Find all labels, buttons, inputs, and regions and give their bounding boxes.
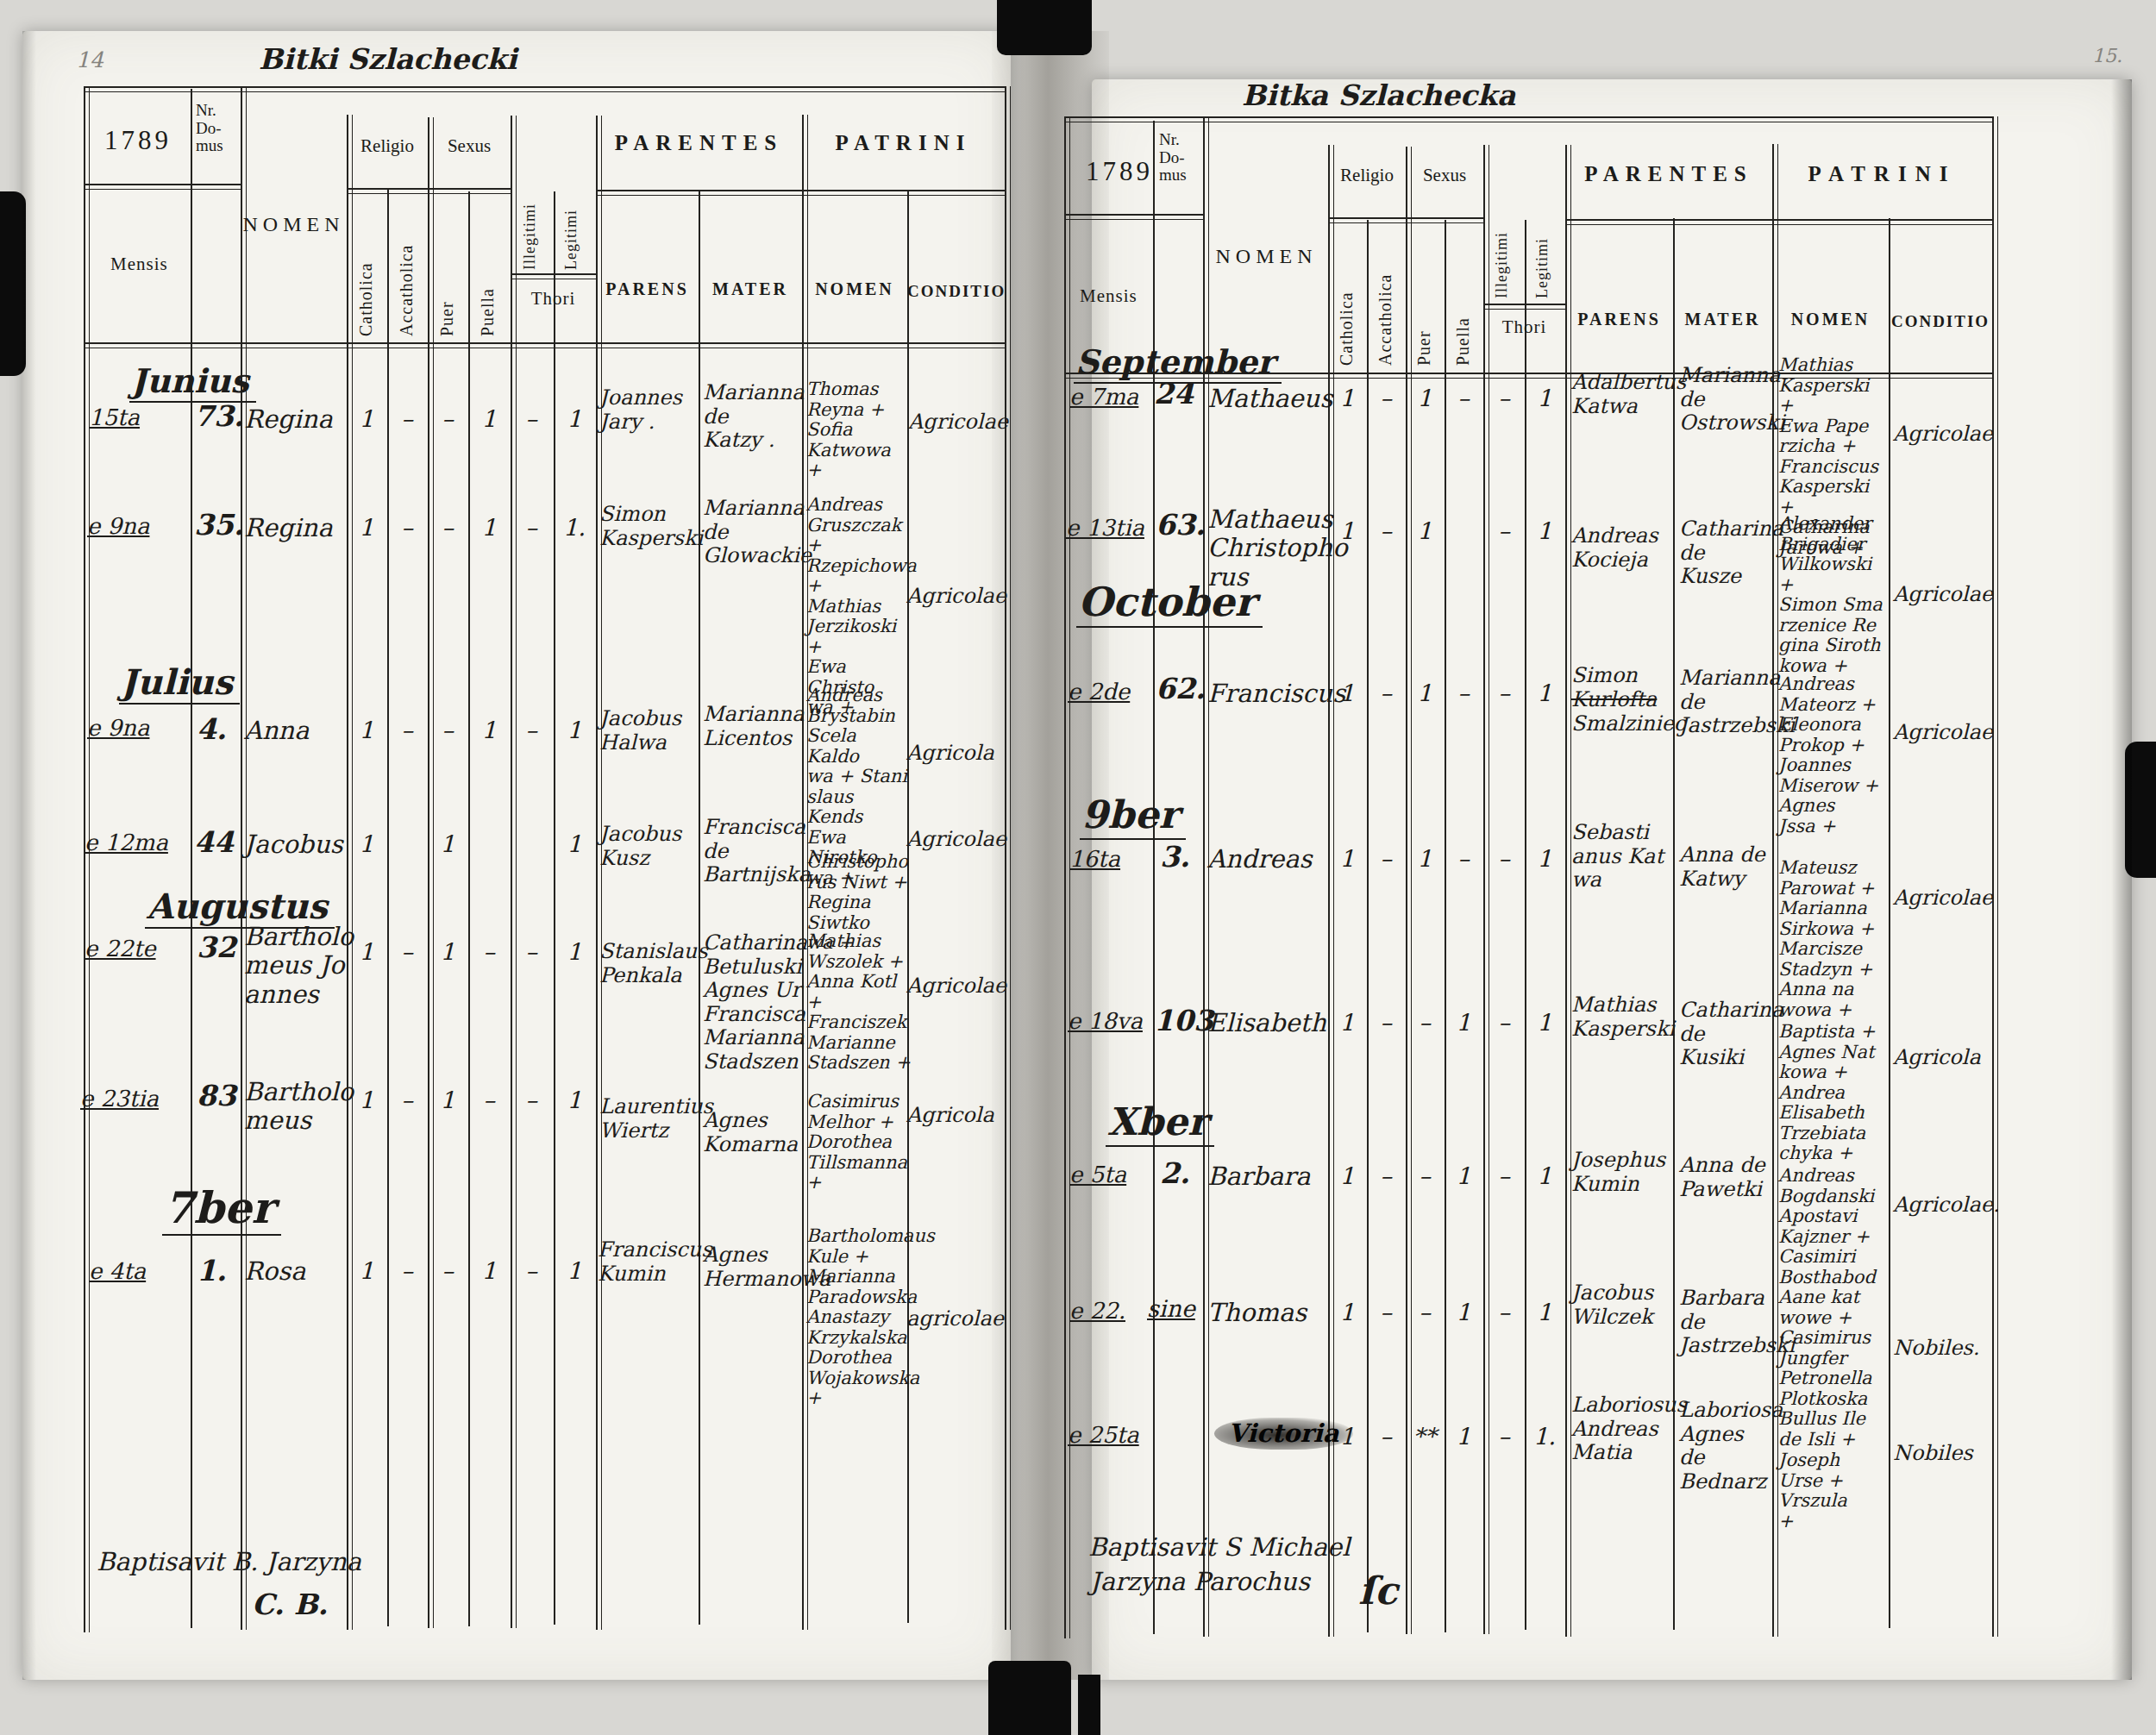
- col-header-nr-domus: Nr. Do- mus: [196, 102, 242, 155]
- entry-house-number: 83: [197, 1080, 236, 1112]
- mark-accatholica: –: [1367, 1009, 1405, 1036]
- col-header-patrini: PATRINI: [802, 131, 1005, 154]
- entry-conditio: Agricolae: [1893, 583, 1990, 607]
- mark-illegitimi: –: [1485, 1009, 1523, 1036]
- entry-conditio: Agricolae: [1893, 886, 1990, 911]
- mark-puer: 1: [1406, 517, 1444, 544]
- col-header-religio: Religio: [347, 136, 428, 156]
- entry-child-name: Thomas: [1207, 1299, 1328, 1327]
- entry-mater: Agnes Komarna: [703, 1109, 801, 1156]
- entry-parens: Adalbertus Katwa: [1571, 371, 1673, 418]
- entry-patrini-names: Mateusz Parowat + Marianna Sirkowa + Mar…: [1778, 858, 1889, 1020]
- mark-catholica: 1: [1328, 1423, 1366, 1450]
- mark-illegitimi: –: [512, 717, 550, 743]
- entry-house-number: 1.: [197, 1255, 226, 1287]
- entry-child-name: Regina: [244, 514, 356, 542]
- entry-child-name: Elisabeth: [1207, 1009, 1328, 1037]
- mark-puer: 1: [1406, 845, 1444, 872]
- mark-legitimi: 1: [1526, 1009, 1564, 1036]
- col-header-accatholica: Accatholica: [398, 197, 417, 336]
- col-header-patrini-nomen: NOMEN: [802, 280, 907, 299]
- entry-parens: Laurentius Wiertz: [599, 1095, 698, 1143]
- mark-catholica: 1: [1328, 385, 1366, 411]
- col-header-sexus: Sexus: [428, 136, 511, 156]
- mark-puer: 1: [429, 830, 467, 857]
- table-line: [1064, 116, 1992, 122]
- mark-accatholica: –: [1367, 845, 1405, 872]
- priest-signature: C. B.: [252, 1588, 328, 1621]
- mark-legitimi: 1: [555, 1087, 593, 1113]
- entry-child-name: Jacobus: [244, 830, 356, 859]
- entry-parens: Stanislaus Penkala: [599, 940, 698, 987]
- table-line: [84, 184, 241, 190]
- mark-legitimi: 1: [1526, 845, 1564, 872]
- entry-date: e 5ta: [1069, 1162, 1126, 1188]
- col-header-catholica: Catholica: [357, 197, 376, 336]
- mark-puer: –: [1406, 1299, 1444, 1325]
- mark-accatholica: –: [388, 717, 426, 743]
- month-header: 9ber: [1080, 793, 1186, 840]
- table-line: [1328, 217, 1483, 223]
- mark-catholica: 1: [348, 717, 385, 743]
- entry-mater: Marianna de Jastrzebski: [1679, 667, 1772, 738]
- table-line: [1525, 220, 1526, 1630]
- entry-patrini-names: Andreas Bogdanski Apostavi Kajzner + Cas…: [1778, 1166, 1889, 1328]
- col-header-mater: MATER: [699, 280, 802, 299]
- mark-illegitimi: –: [512, 1257, 550, 1284]
- entry-mater: Marianna de Glowackie: [703, 497, 801, 568]
- col-header-nr-domus: Nr. Do- mus: [1159, 131, 1206, 185]
- mark-puella: 1: [1445, 1299, 1482, 1325]
- entry-conditio: Agricola: [906, 742, 1003, 766]
- entry-conditio: Agricola: [906, 1104, 1003, 1128]
- entry-conditio: Nobiles.: [1893, 1337, 1990, 1361]
- entry-date: e 22te: [85, 936, 156, 962]
- mark-puella: 1: [1445, 1009, 1482, 1036]
- handwritten-title: Bitka Szlachecka: [1242, 79, 1515, 112]
- mark-accatholica: –: [388, 405, 426, 432]
- entry-patrini-names: Joseph Urse + Vrszula +: [1778, 1450, 1889, 1531]
- table-line: [1005, 86, 1011, 1630]
- col-header-parentes: PARENTES: [1565, 162, 1772, 185]
- mark-catholica: 1: [1328, 1009, 1366, 1036]
- mark-accatholica: –: [388, 514, 426, 541]
- entry-parens: Jacobus Kusz: [599, 823, 698, 870]
- col-header-mater: MATER: [1673, 310, 1772, 329]
- month-header: 7ber: [162, 1183, 281, 1236]
- mark-puer: –: [429, 514, 467, 541]
- mark-puella: –: [470, 938, 508, 965]
- mark-legitimi: 1.: [555, 514, 593, 541]
- entry-conditio: agricolae: [906, 1307, 1003, 1331]
- entry-parens: Smalziniec: [1571, 712, 1673, 736]
- mark-puella: 1: [470, 405, 508, 432]
- mark-puer: –: [1406, 1009, 1444, 1036]
- baptizavit-note: Baptisavit B. Jarzyna: [97, 1548, 361, 1576]
- entry-child-name: Mathaeus Christopho rus: [1207, 505, 1328, 592]
- mark-accatholica: –: [1367, 385, 1405, 411]
- col-header-mensis: Mensis: [1080, 286, 1166, 306]
- entry-house-number: 2.: [1160, 1157, 1189, 1190]
- mark-puella: –: [1445, 385, 1482, 411]
- entry-mater: Anna de Katwy: [1679, 843, 1772, 891]
- table-line: [84, 86, 90, 1632]
- entry-parens: Laboriosus Andreas Matia: [1571, 1394, 1673, 1465]
- entry-patrini-names: Thomas Reyna + Sofia Katwowa +: [806, 379, 912, 481]
- table-line: [1064, 116, 1070, 1638]
- entry-date: 15ta: [89, 405, 140, 431]
- mark-catholica: 1: [1328, 517, 1366, 544]
- entry-house-number: 35.: [194, 509, 243, 542]
- entry-parens: Simon: [1571, 664, 1673, 688]
- entry-patrini-names: Casimirus Jungfer Petronella Plotkoska B…: [1778, 1328, 1889, 1450]
- mark-puella: –: [470, 1087, 508, 1113]
- mark-puella: 1: [1445, 1162, 1482, 1189]
- entry-mater: Barbara de Jastrzebski: [1679, 1287, 1772, 1358]
- mark-accatholica: –: [388, 1257, 426, 1284]
- entry-house-number: 4.: [197, 713, 226, 746]
- mark-accatholica: –: [1367, 680, 1405, 706]
- entry-patrini-names: Mathias Wszolek + Anna Kotl + Franciszek…: [806, 931, 912, 1074]
- mark-catholica: 1: [348, 1257, 385, 1284]
- entry-child-name: Regina: [244, 405, 356, 434]
- col-header-mensis: Mensis: [110, 254, 212, 274]
- mark-puella: 1: [1445, 1423, 1482, 1450]
- mark-puer: –: [1406, 1162, 1444, 1189]
- entry-conditio: Agricolae: [906, 974, 1003, 999]
- binding-top: [997, 0, 1092, 55]
- mark-illegitimi: –: [1485, 1423, 1523, 1450]
- entry-date: e 9na: [87, 514, 149, 540]
- baptizavit-note: Baptisavit S Michael: [1088, 1533, 1351, 1562]
- mark-illegitimi: –: [512, 405, 550, 432]
- mark-illegitimi: –: [1485, 385, 1523, 411]
- mark-catholica: 1: [1328, 1299, 1366, 1325]
- entry-conditio: Agricolae: [906, 828, 1003, 852]
- priest-signature: ſc: [1358, 1569, 1398, 1613]
- entry-house-number: 73.: [194, 400, 243, 433]
- right-page-edge-shadow: [2111, 79, 2132, 1680]
- mark-accatholica: –: [1367, 1162, 1405, 1189]
- entry-child-name: Anna: [244, 717, 356, 745]
- col-header-puer: Puer: [1415, 226, 1434, 366]
- mark-puella: 1: [470, 1257, 508, 1284]
- mark-catholica: 1: [348, 405, 385, 432]
- table-line: [84, 342, 1005, 348]
- col-header-sexus: Sexus: [1406, 166, 1483, 185]
- entry-patrini-names: Andreas Mateorz + Eleonora Prokop + Joan…: [1778, 674, 1889, 836]
- mark-accatholica: –: [1367, 517, 1405, 544]
- mark-catholica: 1: [1328, 1162, 1366, 1189]
- entry-parens: Josephus Kumin: [1571, 1149, 1673, 1196]
- table-line: [699, 190, 700, 1625]
- col-header-illegitimi: Illegitimi: [1494, 222, 1510, 298]
- col-header-puella: Puella: [1454, 226, 1473, 366]
- entry-date: e 2de: [1068, 680, 1130, 705]
- mark-catholica: 1: [348, 938, 385, 965]
- baptizavit-note: Jarzyna Parochus: [1090, 1568, 1310, 1596]
- table-line: [191, 89, 192, 1628]
- mark-puer: 1: [1406, 680, 1444, 706]
- col-header-catholica: Catholica: [1338, 226, 1357, 366]
- month-header: Junius: [129, 362, 256, 403]
- entry-house-number: 24: [1154, 378, 1194, 410]
- entry-patrini-names: Bartholomaus Kule + Marianna Paradowska …: [806, 1226, 912, 1409]
- table-line: [1565, 219, 1992, 225]
- table-line: [347, 188, 511, 194]
- mark-legitimi: 1: [1526, 680, 1564, 706]
- col-header-patrini: PATRINI: [1772, 162, 1992, 185]
- entry-mater: Marianna de Ostrowski: [1679, 364, 1772, 435]
- entry-child-name: Bartholo meus Jo annes: [244, 923, 356, 1009]
- mark-puer: 1: [429, 1087, 467, 1113]
- table-line: [1328, 145, 1334, 1637]
- mark-accatholica: –: [1367, 1299, 1405, 1325]
- entry-conditio: Nobiles: [1893, 1442, 1990, 1466]
- mark-legitimi: 1: [555, 1257, 593, 1284]
- mark-illegitimi: –: [1485, 680, 1523, 706]
- entry-house-number: 63.: [1156, 509, 1205, 542]
- mark-puella: –: [1445, 845, 1482, 872]
- entry-parens: Jacobus Halwa: [599, 707, 698, 755]
- table-line: [1406, 147, 1412, 1634]
- table-line: [1483, 145, 1489, 1634]
- mark-illegitimi: –: [1485, 517, 1523, 544]
- entry-patrini-names: Baptista + Agnes Nat kowa + Andrea Elisa…: [1778, 1022, 1889, 1164]
- table-line: [1367, 220, 1369, 1632]
- mark-illegitimi: –: [512, 938, 550, 965]
- col-header-thori: Thori: [1483, 317, 1565, 337]
- entry-mater: Francisca de Bartnijska: [703, 816, 801, 887]
- mark-legitimi: 1: [555, 938, 593, 965]
- mark-legitimi: 1: [1526, 1299, 1564, 1325]
- page-number: 15.: [2092, 45, 2122, 66]
- mark-illegitimi: –: [512, 514, 550, 541]
- col-header-parens: PARENS: [1565, 310, 1673, 329]
- entry-date: e 4ta: [89, 1259, 146, 1285]
- page-number: 14: [76, 48, 103, 73]
- mark-legitimi: 1: [555, 830, 593, 857]
- mark-accatholica: –: [1367, 1423, 1405, 1450]
- mark-legitimi: 1: [1526, 385, 1564, 411]
- entry-mater: Catharina Betuluski Agnes Ur Francisca M…: [703, 931, 801, 1074]
- table-line: [1565, 145, 1571, 1637]
- col-header-puella: Puella: [479, 197, 498, 336]
- mark-puella: –: [1445, 680, 1482, 706]
- mark-legitimi: 1: [555, 717, 593, 743]
- col-header-illegitimi: Illegitimi: [522, 194, 538, 270]
- mark-puer: 1: [1406, 385, 1444, 411]
- col-header-accatholica: Accatholica: [1376, 226, 1395, 366]
- entry-parens: Sebasti anus Kat wa: [1571, 821, 1673, 893]
- mark-legitimi: 1: [555, 405, 593, 432]
- col-header-parentes: PARENTES: [596, 131, 802, 154]
- table-line: [596, 190, 1005, 196]
- month-header: Xber: [1106, 1100, 1214, 1147]
- entry-mater: Laboriosa Agnes de Bednarz: [1679, 1399, 1772, 1494]
- entry-house-number: sine: [1147, 1295, 1195, 1322]
- entry-date: e 22.: [1069, 1299, 1125, 1325]
- entry-child-name: Mathaeus: [1207, 385, 1328, 413]
- mark-catholica: 1: [348, 830, 385, 857]
- table-line: [1445, 220, 1446, 1632]
- table-line: [1889, 218, 1890, 1628]
- year-label: 1789: [1068, 157, 1171, 185]
- entry-date: e 12ma: [85, 830, 168, 856]
- entry-mater: Catharina de Kusze: [1679, 517, 1772, 589]
- mark-illegitimi: –: [512, 1087, 550, 1113]
- entry-parens-struck: Kurlofta: [1571, 688, 1673, 712]
- entry-child-name: Barbara: [1207, 1162, 1328, 1191]
- mark-legitimi: 1: [1526, 517, 1564, 544]
- col-header-patrini-nomen: NOMEN: [1772, 310, 1889, 329]
- entry-house-number: 3.: [1160, 841, 1189, 874]
- mark-puer: –: [429, 717, 467, 743]
- handwritten-title: Bitki Szlachecki: [259, 43, 517, 76]
- table-line: [511, 273, 596, 279]
- year-label: 1789: [86, 126, 190, 154]
- entry-house-number: 62.: [1156, 673, 1205, 705]
- table-line: [1673, 218, 1675, 1630]
- mark-legitimi: 1: [1526, 1162, 1564, 1189]
- entry-conditio: Agricolae.: [1893, 1193, 1990, 1218]
- entry-date: e 7ma: [1069, 385, 1138, 410]
- mark-catholica: 1: [1328, 680, 1366, 706]
- col-header-nomen: NOMEN: [241, 214, 347, 236]
- col-header-thori: Thori: [511, 289, 596, 309]
- col-header-religio: Religio: [1328, 166, 1406, 185]
- entry-conditio: Agricolae: [908, 410, 1005, 435]
- col-header-legitimi: Legitimi: [563, 194, 580, 270]
- mark-catholica: 1: [348, 1087, 385, 1113]
- mark-legitimi: 1.: [1526, 1423, 1564, 1450]
- entry-parens: Jacobus Wilczek: [1571, 1281, 1673, 1329]
- mark-catholica: 1: [348, 514, 385, 541]
- entry-date: e 25ta: [1068, 1423, 1139, 1449]
- col-header-conditio: CONDITIO: [907, 283, 1005, 301]
- entry-parens: Andreas Kocieja: [1571, 524, 1673, 572]
- mark-puella: 1: [470, 514, 508, 541]
- mark-illegitimi: –: [1485, 1299, 1523, 1325]
- table-line: [1483, 304, 1565, 310]
- entry-house-number: 44: [194, 826, 234, 859]
- col-header-puer: Puer: [438, 197, 457, 336]
- entry-date: 16ta: [1069, 847, 1120, 873]
- entry-child-name: Andreas: [1207, 845, 1328, 874]
- mark-accatholica: –: [388, 938, 426, 965]
- entry-conditio: Agricolae: [1893, 423, 1990, 447]
- entry-mater: Marianna de Katzy .: [703, 381, 801, 453]
- mark-puer: 1: [429, 938, 467, 965]
- entry-mater: Marianna Licentos: [703, 703, 801, 750]
- mark-puella: 1: [470, 717, 508, 743]
- mark-puer: **: [1406, 1423, 1444, 1450]
- entry-mater: Catharina de Kusiki: [1679, 999, 1772, 1070]
- register-scan: 14 Bitki Szlachecki 1789 Nr. Do- mus Rel…: [0, 0, 2156, 1735]
- entry-mater: Anna de Pawetki: [1679, 1154, 1772, 1201]
- entry-patrini-names: Casimirus Melhor + Dorothea Tillsmanna +: [806, 1092, 912, 1193]
- entry-conditio: Agricolae: [906, 585, 1003, 609]
- mark-puer: –: [429, 405, 467, 432]
- entry-patrini-names: Alexander Brigadier Wilkowski + Simon Sm…: [1778, 514, 1889, 676]
- entry-house-number: 103: [1154, 1005, 1213, 1037]
- table-line: [84, 86, 1005, 92]
- entry-mater: Agnes Hermanowa: [703, 1243, 801, 1291]
- entry-child-name: Franciscus: [1207, 680, 1332, 708]
- entry-date: e 23tia: [80, 1087, 159, 1112]
- binding-bottom: [988, 1661, 1071, 1735]
- col-header-nomen: NOMEN: [1205, 246, 1328, 268]
- entry-parens: Franciscus Kumin: [598, 1238, 696, 1286]
- entry-conditio: Agricolae: [1893, 721, 1990, 745]
- mark-puer: –: [429, 1257, 467, 1284]
- mark-accatholica: –: [388, 1087, 426, 1113]
- entry-date: e 9na: [87, 716, 149, 742]
- entry-parens: Mathias Kasperski: [1571, 993, 1673, 1041]
- binding-bottom-strap: [1078, 1675, 1100, 1735]
- entry-conditio: Agricola: [1893, 1046, 1990, 1070]
- entry-date: e 18va: [1068, 1009, 1143, 1035]
- entry-child-name: Rosa: [244, 1257, 356, 1286]
- col-header-conditio: CONDITIO: [1889, 313, 1992, 331]
- entry-house-number: 32: [197, 931, 236, 964]
- mark-illegitimi: –: [1485, 1162, 1523, 1189]
- month-header: Julius: [119, 662, 240, 705]
- table-line: [1064, 214, 1203, 220]
- entry-parens: Simon Kasperski: [599, 503, 698, 550]
- entry-parens: Joannes Jary .: [599, 386, 698, 434]
- entry-date: e 13tia: [1066, 516, 1144, 542]
- table-line: [1992, 116, 1998, 1637]
- left-page-edge-shadow: [22, 31, 36, 1680]
- col-header-parens: PARENS: [596, 280, 699, 299]
- entry-child-name: Bartholo meus: [244, 1078, 356, 1136]
- col-header-legitimi: Legitimi: [1534, 222, 1551, 298]
- mark-catholica: 1: [1328, 845, 1366, 872]
- mark-illegitimi: –: [1485, 845, 1523, 872]
